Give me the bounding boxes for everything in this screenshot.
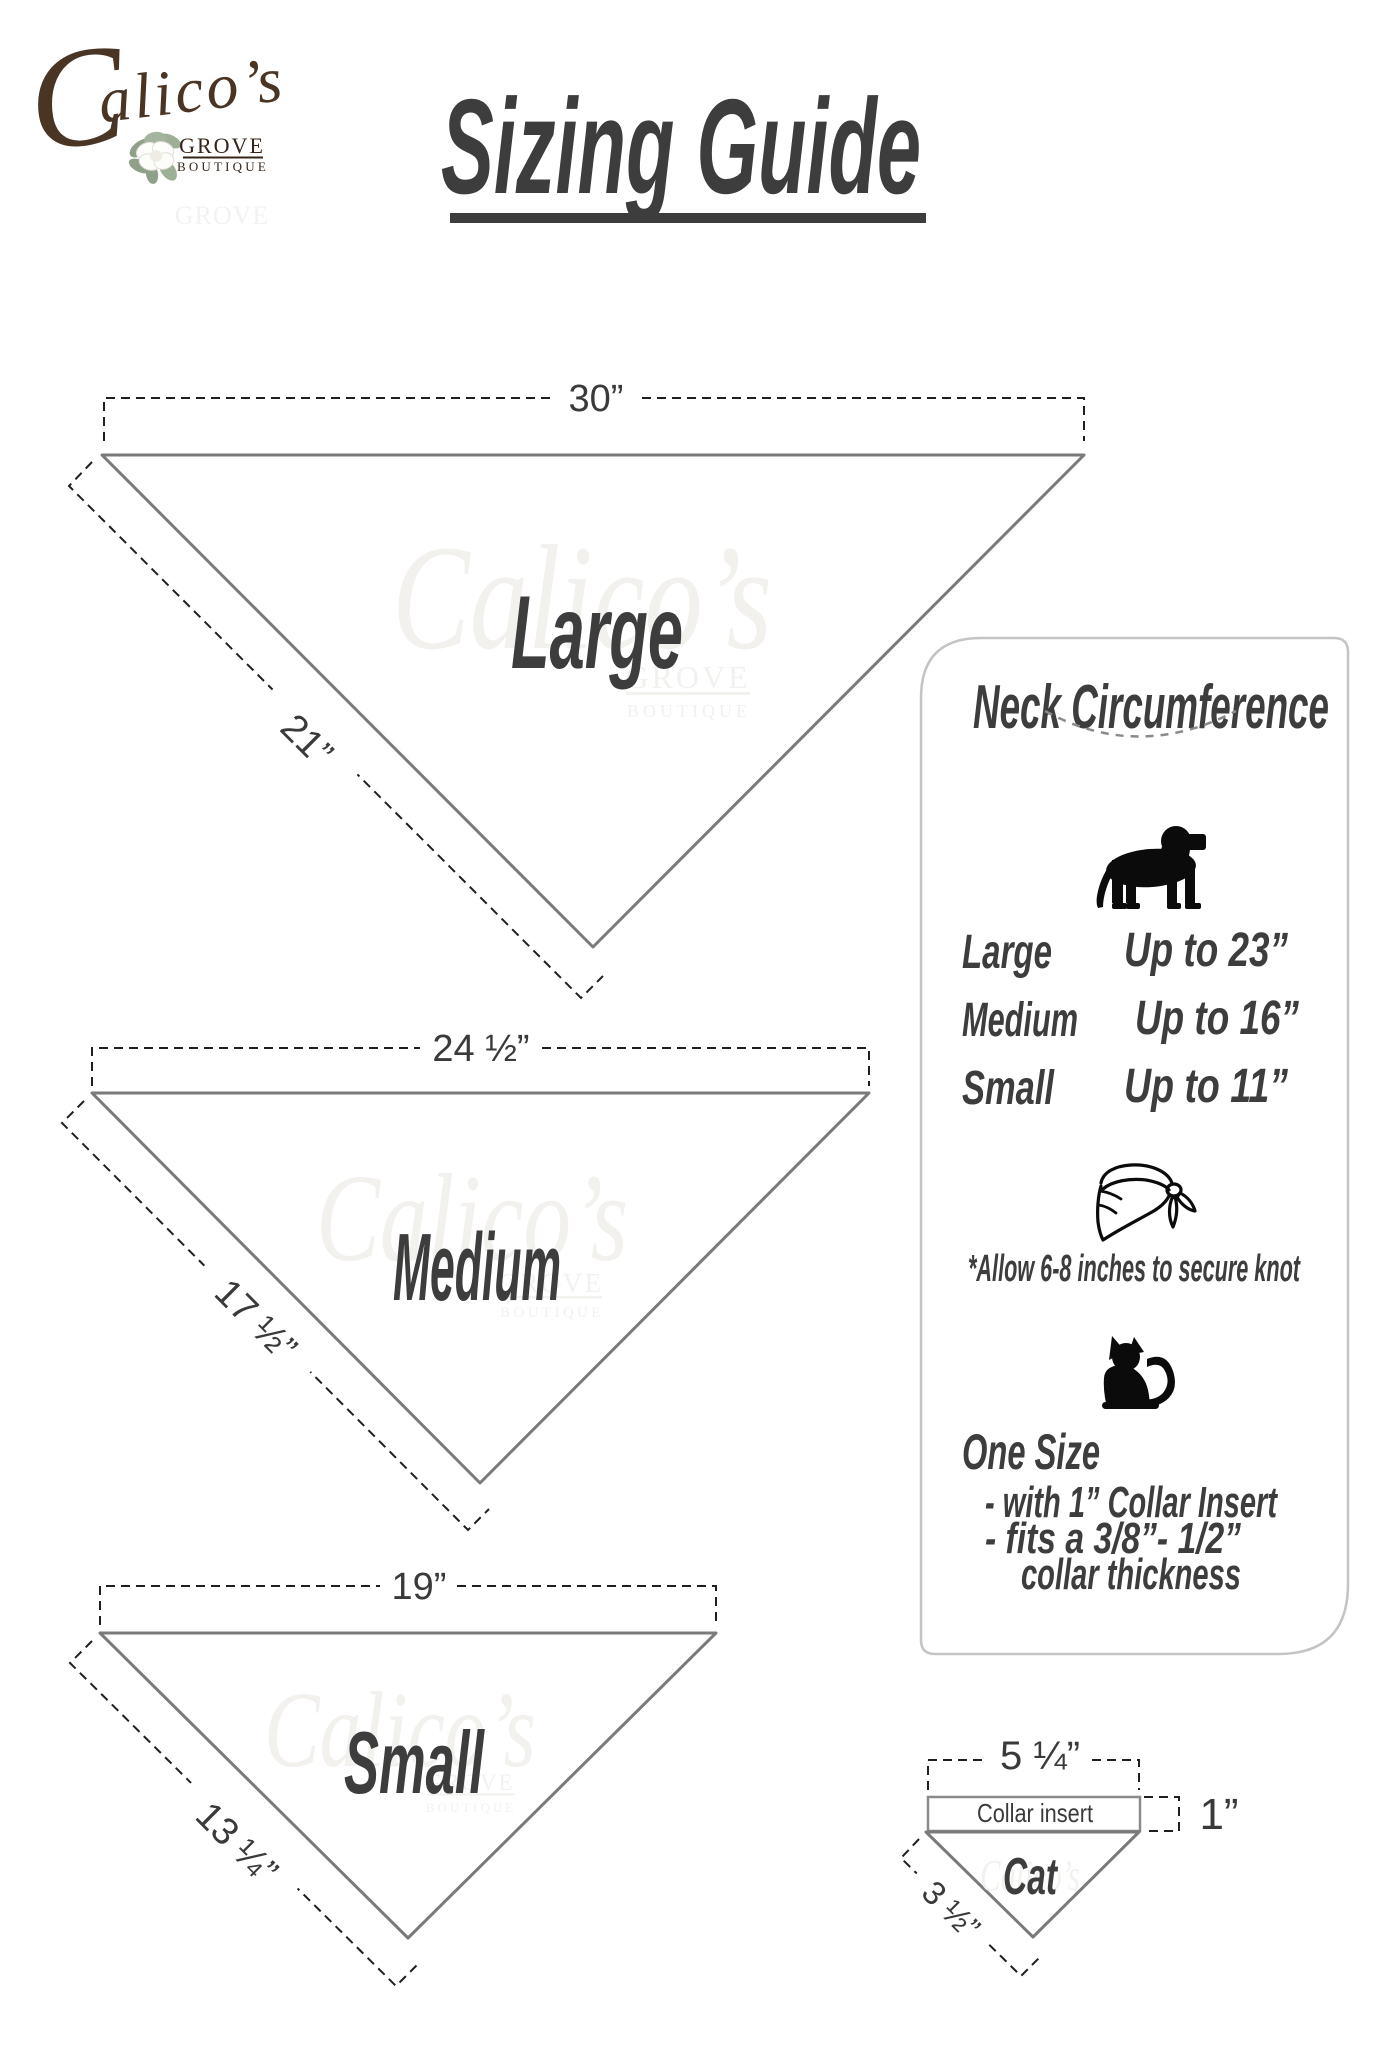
svg-text:Neck Circumference: Neck Circumference	[973, 673, 1329, 742]
svg-text:1”: 1”	[1199, 1790, 1238, 1839]
svg-text:Large: Large	[962, 926, 1052, 979]
svg-text:alico’s: alico’s	[94, 43, 288, 136]
svg-text:Medium: Medium	[962, 994, 1078, 1047]
svg-text:Small: Small	[344, 1713, 485, 1812]
svg-text:24 ½”: 24 ½”	[432, 1028, 529, 1070]
svg-text:5 ¼”: 5 ¼”	[1000, 1734, 1080, 1778]
svg-text:GROVE: GROVE	[175, 201, 270, 230]
svg-text:Collar insert: Collar insert	[977, 1798, 1094, 1828]
svg-text:Small: Small	[962, 1062, 1055, 1115]
svg-text:Large: Large	[511, 575, 683, 691]
svg-text:19”: 19”	[392, 1566, 447, 1608]
svg-text:Cat: Cat	[1003, 1848, 1059, 1906]
svg-text:BOUTIQUE: BOUTIQUE	[627, 701, 751, 721]
svg-text:Up to 16”: Up to 16”	[1135, 992, 1299, 1045]
svg-text:One Size: One Size	[962, 1424, 1100, 1480]
svg-text:Up to 11”: Up to 11”	[1124, 1060, 1288, 1113]
svg-text:BOUTIQUE: BOUTIQUE	[177, 159, 269, 174]
svg-text:collar thickness: collar thickness	[1021, 1550, 1241, 1599]
svg-text:*Allow 6-8 inches to secure kn: *Allow 6-8 inches to secure knot	[968, 1248, 1301, 1290]
svg-text:Up to 23”: Up to 23”	[1124, 924, 1288, 977]
svg-text:30”: 30”	[569, 378, 624, 420]
svg-text:Sizing Guide: Sizing Guide	[441, 71, 921, 222]
svg-text:Medium: Medium	[393, 1214, 561, 1321]
svg-text:GROVE: GROVE	[179, 133, 265, 158]
